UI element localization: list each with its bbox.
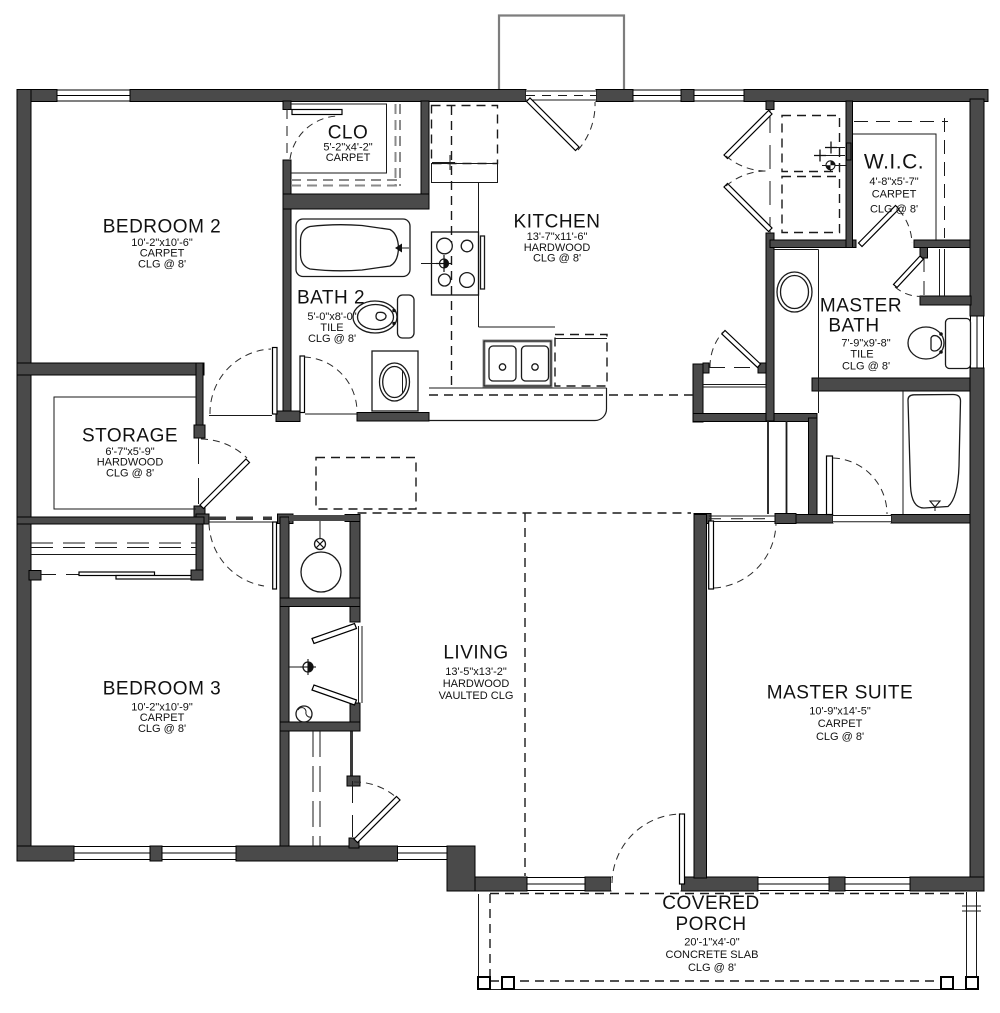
svg-text:20'-1"x4'-0": 20'-1"x4'-0" (684, 937, 740, 949)
svg-text:4'-8"x5'-7": 4'-8"x5'-7" (869, 176, 918, 188)
svg-text:HARDWOOD: HARDWOOD (443, 678, 510, 690)
svg-text:CLG @ 8': CLG @ 8' (842, 361, 890, 373)
svg-text:CLG @ 8': CLG @ 8' (688, 962, 736, 974)
svg-text:CONCRETE SLAB: CONCRETE SLAB (666, 949, 759, 961)
svg-text:KITCHEN: KITCHEN (514, 212, 601, 233)
svg-text:COVERED: COVERED (662, 893, 759, 914)
svg-text:CLG @ 8': CLG @ 8' (138, 259, 186, 271)
svg-text:CARPET: CARPET (872, 189, 917, 201)
svg-text:BATH: BATH (828, 316, 879, 337)
svg-text:CARPET: CARPET (818, 718, 863, 730)
svg-text:VAULTED CLG: VAULTED CLG (439, 690, 514, 702)
svg-text:CLG @ 8': CLG @ 8' (533, 253, 581, 265)
svg-text:LIVING: LIVING (443, 643, 508, 664)
svg-text:MASTER: MASTER (820, 296, 902, 317)
svg-text:TILE: TILE (850, 349, 873, 361)
svg-text:MASTER SUITE: MASTER SUITE (767, 683, 913, 704)
svg-text:CARPET: CARPET (326, 152, 371, 164)
svg-text:BATH 2: BATH 2 (297, 288, 365, 309)
svg-text:CLG @ 8': CLG @ 8' (870, 204, 918, 216)
svg-text:STORAGE: STORAGE (82, 426, 178, 447)
svg-text:CLG @ 8': CLG @ 8' (308, 333, 356, 345)
svg-text:BEDROOM 3: BEDROOM 3 (103, 679, 222, 700)
svg-text:CLG @ 8': CLG @ 8' (106, 468, 154, 480)
svg-text:13'-5"x13'-2": 13'-5"x13'-2" (445, 666, 507, 678)
svg-text:PORCH: PORCH (675, 914, 746, 935)
svg-text:W.I.C.: W.I.C. (864, 151, 924, 174)
svg-text:CLG @ 8': CLG @ 8' (816, 731, 864, 743)
svg-text:CLG @ 8': CLG @ 8' (138, 723, 186, 735)
svg-text:CLO: CLO (328, 123, 369, 144)
svg-text:10'-9"x14'-5": 10'-9"x14'-5" (809, 706, 871, 718)
svg-text:BEDROOM 2: BEDROOM 2 (103, 217, 222, 238)
